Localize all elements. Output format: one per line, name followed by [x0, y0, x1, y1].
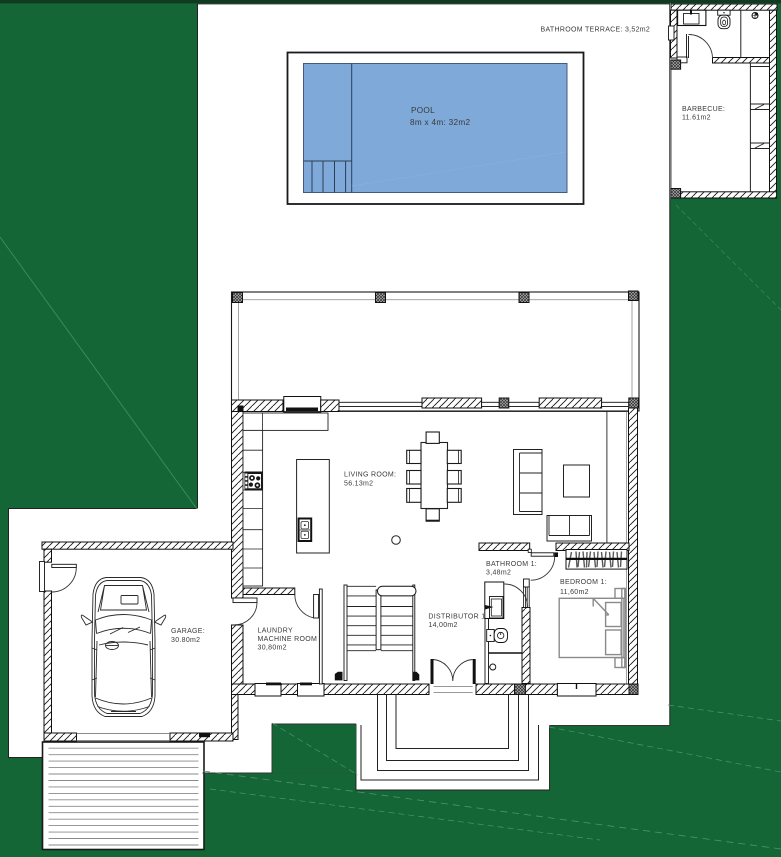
svg-text:MACHINE ROOM: MACHINE ROOM: [258, 636, 318, 643]
svg-text:BATHROOM TERRACE: 3,52m2: BATHROOM TERRACE: 3,52m2: [541, 27, 651, 34]
svg-text:POOL: POOL: [411, 106, 435, 115]
svg-text:BATHROOM 1:: BATHROOM 1:: [486, 561, 537, 568]
svg-text:14,00m2: 14,00m2: [428, 622, 457, 629]
svg-text:30,80m2: 30,80m2: [258, 645, 287, 652]
svg-text:DISTRIBUTOR 1:: DISTRIBUTOR 1:: [428, 614, 487, 621]
svg-text:BARBECUE:: BARBECUE:: [682, 106, 725, 113]
svg-text:30.80m2: 30.80m2: [171, 637, 200, 644]
svg-text:LIVING ROOM:: LIVING ROOM:: [344, 472, 396, 479]
svg-text:BEDROOM 1:: BEDROOM 1:: [560, 579, 607, 586]
svg-text:GARAGE:: GARAGE:: [171, 628, 205, 635]
svg-text:LAUNDRY: LAUNDRY: [258, 628, 293, 635]
svg-text:8m x 4m: 32m2: 8m x 4m: 32m2: [410, 118, 470, 127]
svg-text:56.13m2: 56.13m2: [344, 481, 373, 488]
svg-text:3,48m2: 3,48m2: [486, 570, 511, 577]
svg-text:11.61m2: 11.61m2: [682, 115, 711, 122]
svg-text:11,60m2: 11,60m2: [560, 589, 589, 596]
